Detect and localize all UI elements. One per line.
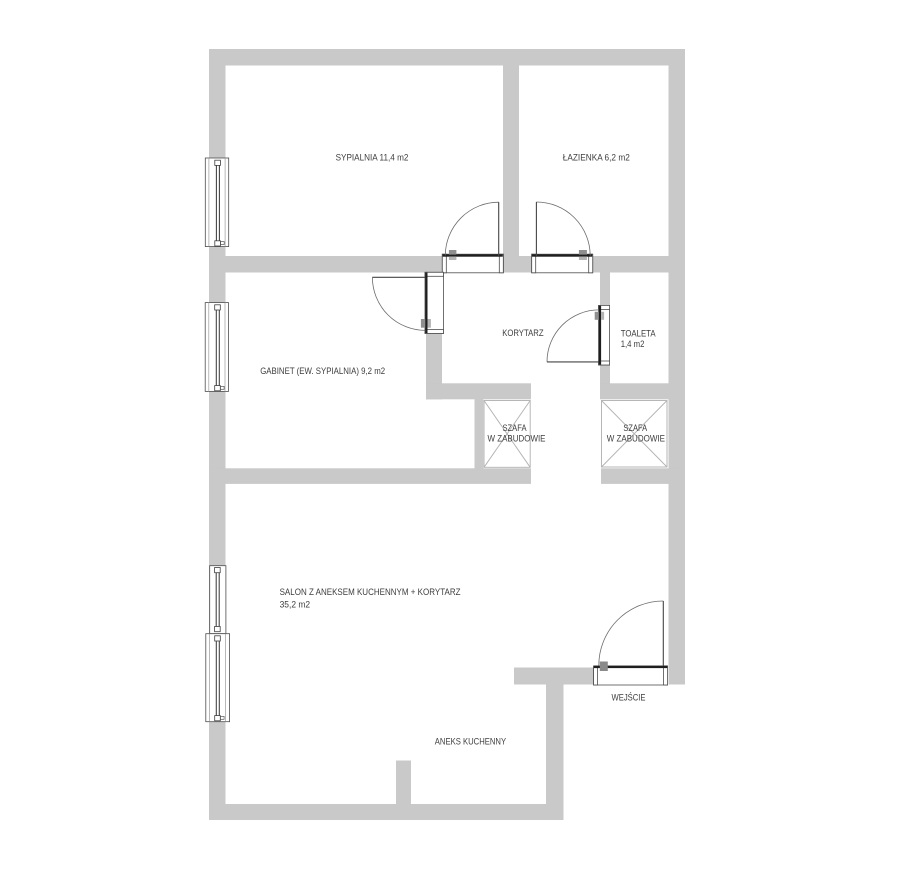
svg-text:1,4 m2: 1,4 m2	[621, 339, 645, 349]
svg-text:SZAFA: SZAFA	[503, 423, 528, 433]
svg-text:SALON Z ANEKSEM KUCHENNYM + KO: SALON Z ANEKSEM KUCHENNYM + KORYTARZ	[280, 587, 461, 597]
svg-text:ANEKS KUCHENNY: ANEKS KUCHENNY	[435, 737, 506, 747]
svg-text:ŁAZIENKA 6,2 m2: ŁAZIENKA 6,2 m2	[563, 152, 630, 162]
svg-text:TOALETA: TOALETA	[621, 329, 657, 339]
svg-text:GABINET (EW. SYPIALNIA) 9,2 m2: GABINET (EW. SYPIALNIA) 9,2 m2	[260, 366, 385, 376]
svg-text:W ZABUDOWIE: W ZABUDOWIE	[488, 434, 546, 444]
svg-text:SZAFA: SZAFA	[623, 423, 647, 433]
svg-text:35,2 m2: 35,2 m2	[280, 599, 311, 609]
svg-text:KORYTARZ: KORYTARZ	[502, 328, 544, 338]
svg-text:SYPIALNIA 11,4 m2: SYPIALNIA 11,4 m2	[336, 153, 409, 163]
svg-text:W ZABUDOWIE: W ZABUDOWIE	[607, 434, 665, 444]
svg-text:WEJŚCIE: WEJŚCIE	[612, 692, 646, 703]
